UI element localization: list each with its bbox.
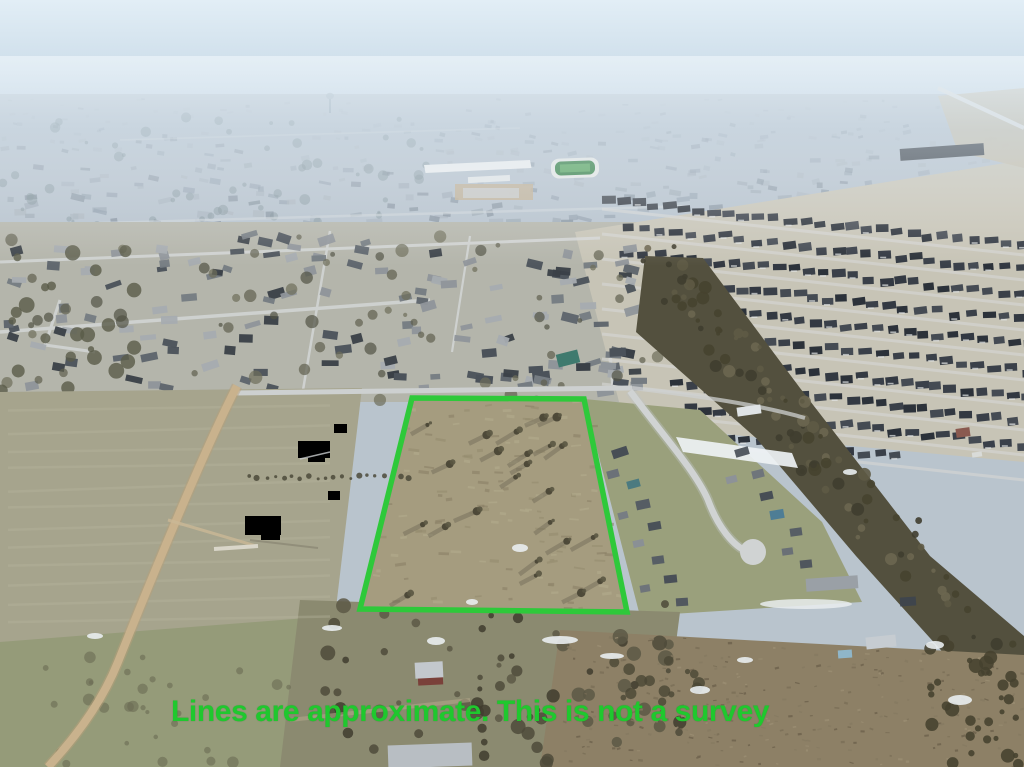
aerial-photo: Lines are approximate. This is not a sur… [0, 0, 1024, 767]
annotation-overlay [0, 0, 1024, 767]
property-boundary-outline [360, 398, 627, 612]
disclaimer-text: Lines are approximate. This is not a sur… [171, 695, 769, 729]
